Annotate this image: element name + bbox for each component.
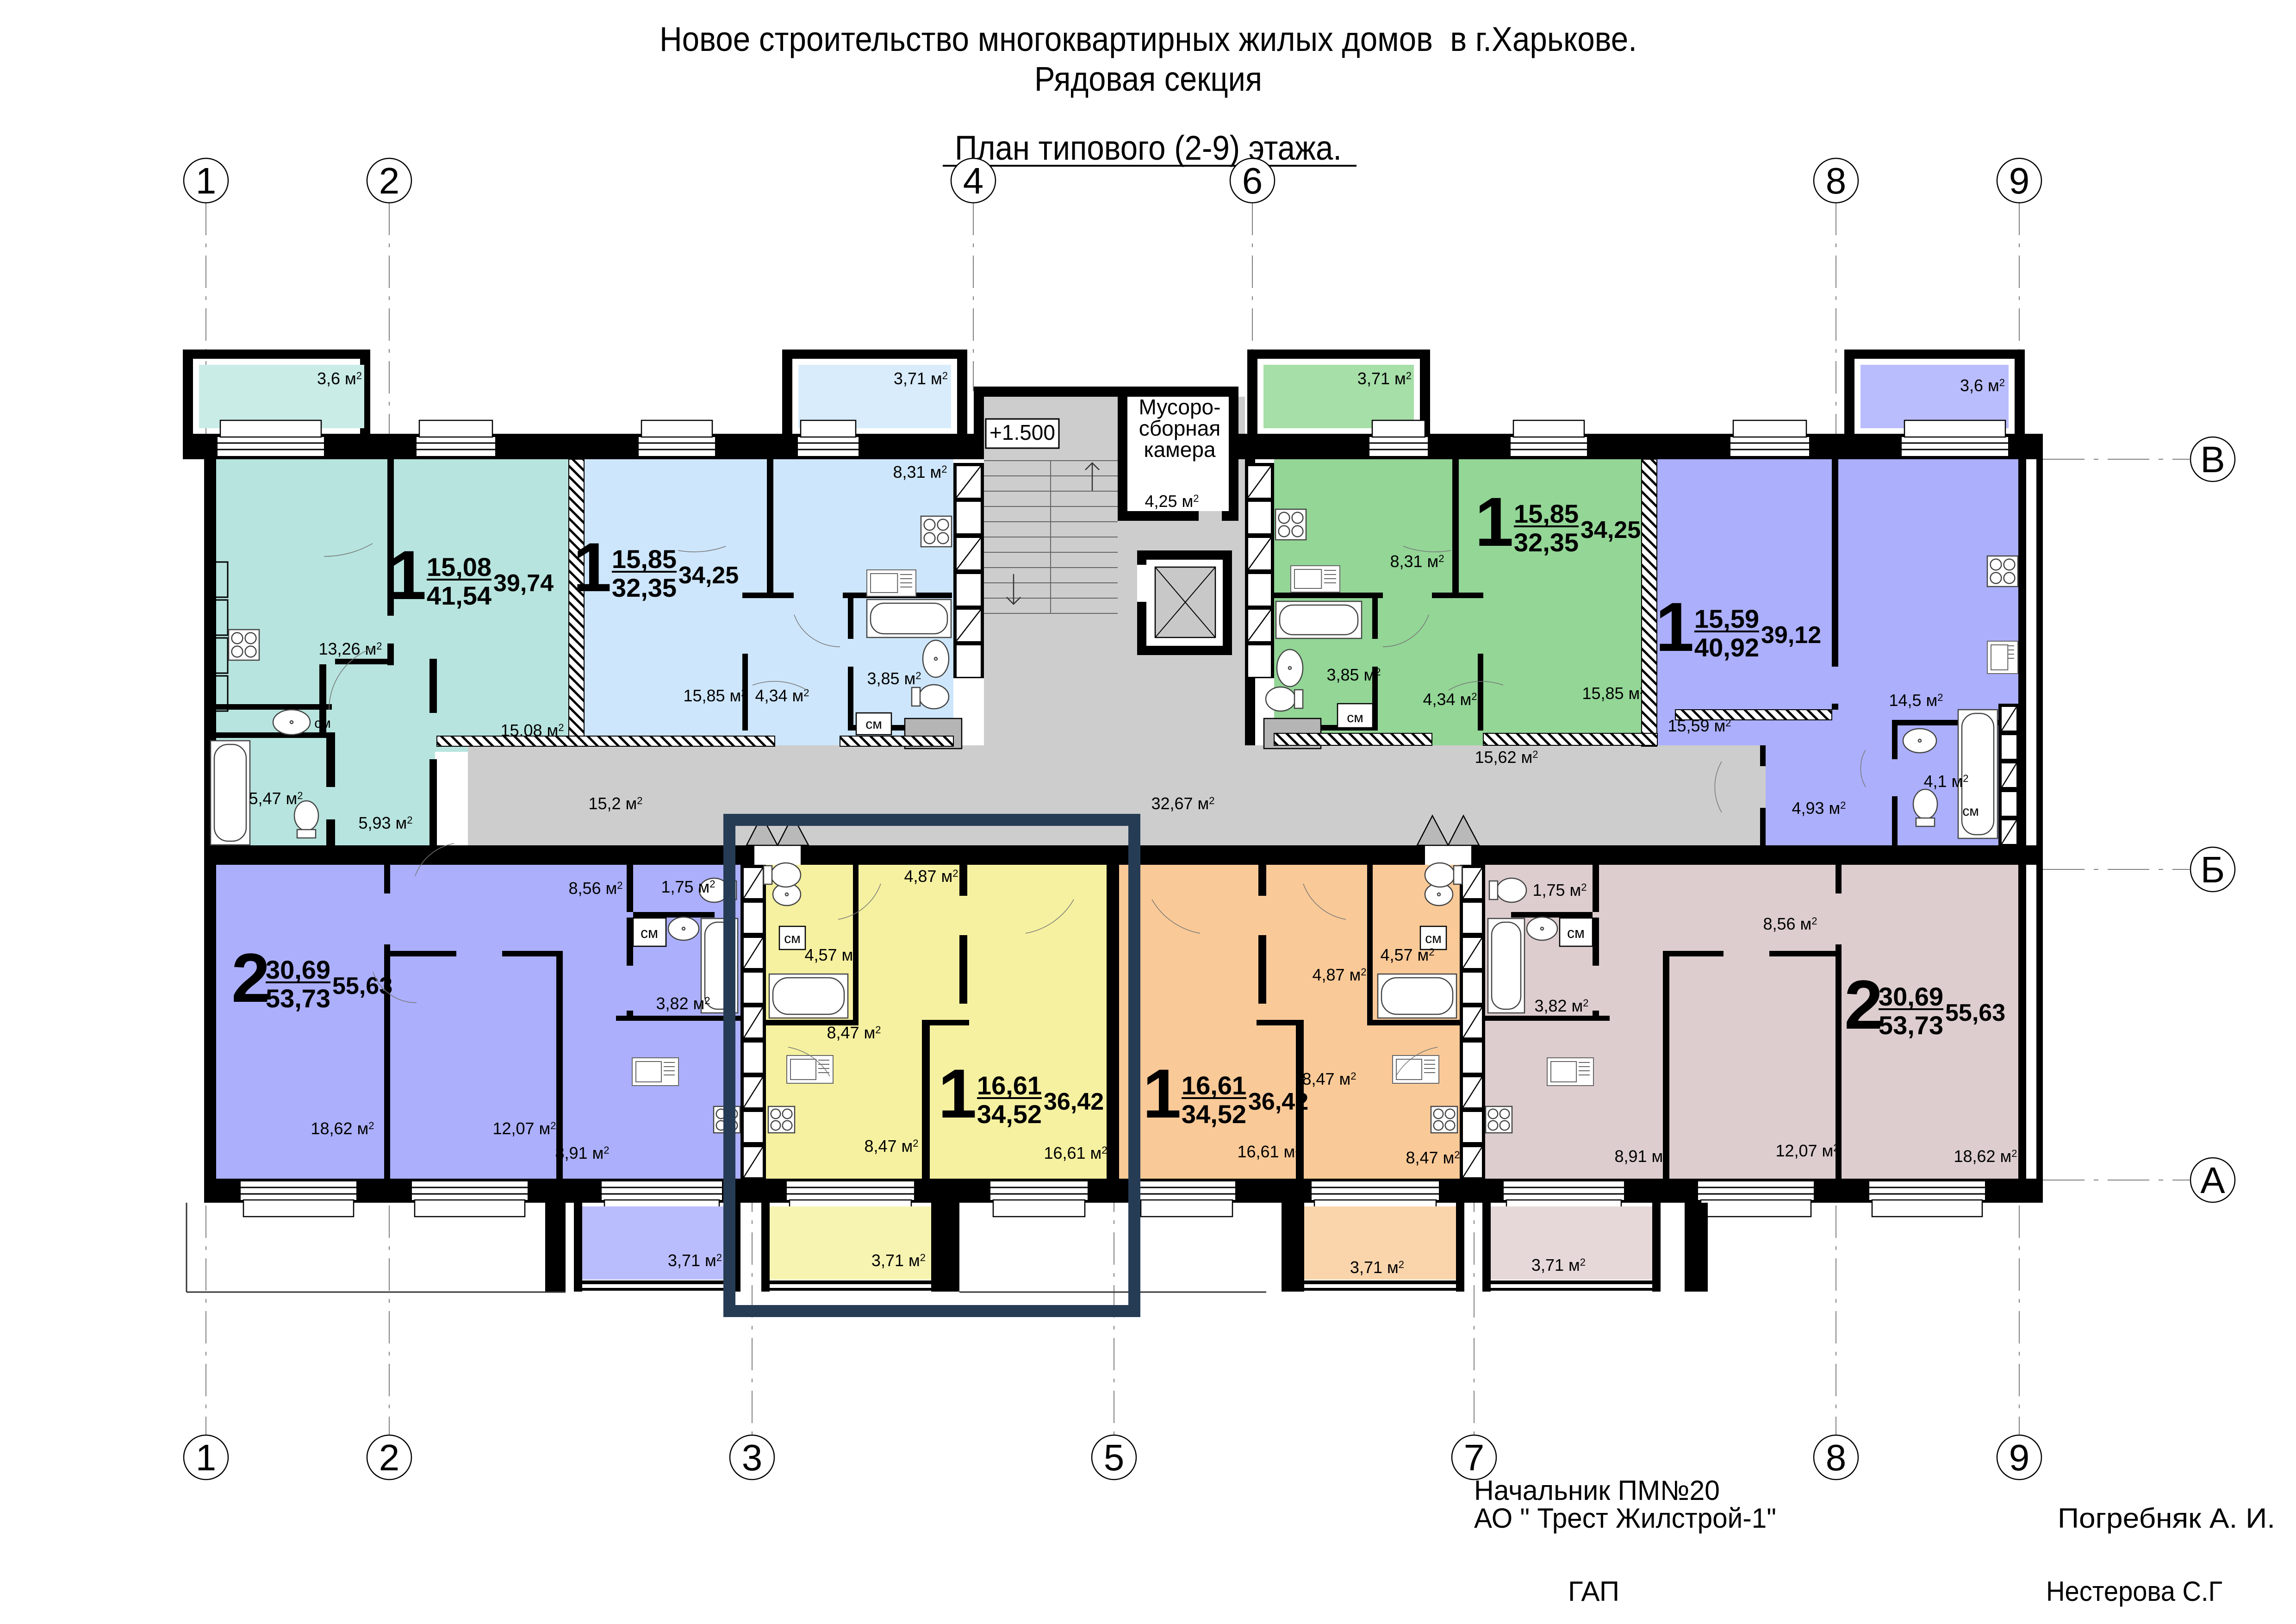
svg-text:Б: Б: [2201, 849, 2225, 890]
svg-text:15,85: 15,85: [612, 544, 677, 574]
svg-text:2: 2: [379, 1437, 400, 1478]
svg-text:15,85 м2: 15,85 м2: [683, 686, 747, 705]
svg-text:Начальник ПМ№20: Начальник ПМ№20: [1474, 1475, 1720, 1506]
svg-text:34,52: 34,52: [1182, 1099, 1246, 1129]
svg-text:34,25: 34,25: [1580, 517, 1641, 543]
svg-text:см: см: [314, 716, 331, 731]
svg-text:5,93 м2: 5,93 м2: [358, 813, 412, 832]
svg-text:см: см: [1567, 924, 1585, 941]
svg-text:8,47 м2: 8,47 м2: [864, 1137, 918, 1156]
svg-text:15,62 м2: 15,62 м2: [1475, 748, 1538, 767]
svg-text:15,59: 15,59: [1694, 604, 1759, 633]
svg-text:4,34 м2: 4,34 м2: [1423, 690, 1477, 709]
svg-text:8: 8: [1826, 160, 1847, 201]
svg-text:4,57 м2: 4,57 м2: [1380, 945, 1434, 964]
svg-text:АО " Трест Жилстрой-1": АО " Трест Жилстрой-1": [1474, 1503, 1776, 1534]
svg-text:4,87 м2: 4,87 м2: [904, 867, 958, 886]
svg-text:8,91 м2: 8,91 м2: [1614, 1147, 1668, 1166]
svg-text:40,92: 40,92: [1694, 633, 1759, 662]
svg-text:см: см: [641, 924, 658, 941]
svg-text:15,2 м2: 15,2 м2: [588, 794, 642, 813]
svg-text:3,82 м2: 3,82 м2: [1534, 996, 1588, 1015]
svg-text:Нестерова С.Г: Нестерова С.Г: [2046, 1576, 2222, 1607]
svg-text:4,25 м2: 4,25 м2: [1145, 492, 1199, 511]
svg-text:1: 1: [573, 528, 611, 606]
svg-text:53,73: 53,73: [1879, 1011, 1943, 1040]
svg-text:8: 8: [1826, 1437, 1847, 1478]
svg-text:15,85 м2: 15,85 м2: [1582, 684, 1645, 703]
svg-text:8,31 м2: 8,31 м2: [893, 462, 947, 481]
svg-text:9: 9: [2009, 1437, 2030, 1478]
svg-text:А: А: [2200, 1160, 2225, 1201]
svg-text:2: 2: [1844, 966, 1883, 1043]
svg-text:15,08: 15,08: [427, 552, 492, 581]
svg-text:3,71 м2: 3,71 м2: [894, 369, 948, 388]
svg-text:8,47 м2: 8,47 м2: [827, 1023, 881, 1042]
svg-text:41,54: 41,54: [427, 581, 492, 610]
svg-text:30,69: 30,69: [266, 955, 330, 984]
svg-text:9: 9: [2009, 160, 2030, 201]
svg-text:2: 2: [231, 939, 270, 1017]
svg-text:7: 7: [1464, 1437, 1485, 1478]
svg-text:15,59 м2: 15,59 м2: [1668, 716, 1731, 735]
svg-text:36,42: 36,42: [1044, 1088, 1104, 1115]
svg-text:1: 1: [938, 1055, 977, 1132]
svg-text:16,61 м2: 16,61 м2: [1044, 1143, 1107, 1162]
svg-text:1,75 м2: 1,75 м2: [1532, 881, 1587, 899]
svg-text:8,56 м2: 8,56 м2: [568, 879, 622, 898]
svg-text:6: 6: [1242, 160, 1263, 201]
svg-text:3,71 м2: 3,71 м2: [1531, 1255, 1586, 1274]
svg-text:30,69: 30,69: [1879, 982, 1943, 1011]
svg-text:1,75 м2: 1,75 м2: [661, 877, 715, 896]
svg-text:8,47 м2: 8,47 м2: [1302, 1069, 1356, 1088]
svg-text:План типового (2-9) этажа.: План типового (2-9) этажа.: [955, 129, 1342, 167]
svg-text:14,5 м2: 14,5 м2: [1889, 691, 1943, 710]
svg-text:55,63: 55,63: [332, 973, 392, 999]
svg-text:8,47 м2: 8,47 м2: [1406, 1148, 1460, 1167]
svg-text:3: 3: [742, 1437, 763, 1478]
svg-text:5: 5: [1104, 1437, 1125, 1478]
svg-text:см: см: [865, 717, 882, 732]
svg-text:Погребняк А. И.: Погребняк А. И.: [2058, 1503, 2275, 1534]
svg-text:ГАП: ГАП: [1568, 1576, 1619, 1607]
svg-text:см: см: [1347, 710, 1363, 725]
svg-text:Новое строительство многокварт: Новое строительство многоквартирных жилы…: [660, 20, 1637, 58]
svg-text:1: 1: [1475, 483, 1513, 561]
svg-text:2: 2: [379, 160, 400, 201]
svg-text:39,74: 39,74: [493, 570, 554, 597]
svg-text:32,67 м2: 32,67 м2: [1151, 794, 1214, 813]
svg-text:3,85 м2: 3,85 м2: [1326, 665, 1381, 684]
svg-text:4,57 м2: 4,57 м2: [804, 945, 859, 964]
svg-text:4: 4: [963, 160, 984, 201]
svg-text:1: 1: [1143, 1055, 1181, 1132]
svg-text:В: В: [2200, 439, 2225, 480]
svg-text:13,26 м2: 13,26 м2: [318, 639, 382, 658]
svg-text:16,61: 16,61: [1182, 1071, 1246, 1100]
svg-text:16,61 м2: 16,61 м2: [1237, 1142, 1300, 1161]
svg-text:3,6 м2: 3,6 м2: [317, 369, 362, 388]
svg-text:Рядовая секция: Рядовая секция: [1034, 60, 1262, 98]
svg-text:8,56 м2: 8,56 м2: [1763, 914, 1817, 933]
svg-text:1: 1: [196, 1437, 217, 1478]
svg-text:16,61: 16,61: [977, 1071, 1042, 1100]
svg-text:1: 1: [196, 160, 217, 201]
svg-text:15,85: 15,85: [1514, 499, 1579, 528]
svg-text:сборная: сборная: [1139, 416, 1220, 440]
svg-text:1: 1: [1655, 588, 1694, 666]
svg-text:камера: камера: [1144, 437, 1216, 462]
svg-text:34,52: 34,52: [977, 1099, 1042, 1129]
svg-text:12,07 м2: 12,07 м2: [1775, 1141, 1839, 1160]
svg-text:см: см: [784, 931, 801, 946]
svg-text:4,87 м2: 4,87 м2: [1312, 965, 1366, 984]
svg-text:3,71 м2: 3,71 м2: [1350, 1258, 1404, 1277]
svg-text:53,73: 53,73: [266, 984, 330, 1013]
svg-text:4,1 м2: 4,1 м2: [1923, 772, 1968, 791]
svg-text:4,34 м2: 4,34 м2: [755, 686, 809, 705]
svg-text:32,35: 32,35: [612, 573, 677, 602]
svg-text:39,12: 39,12: [1761, 622, 1821, 649]
svg-text:18,62 м2: 18,62 м2: [1954, 1147, 2017, 1166]
svg-text:1: 1: [388, 536, 426, 614]
svg-text:18,62 м2: 18,62 м2: [311, 1119, 374, 1138]
svg-text:32,35: 32,35: [1514, 528, 1579, 557]
svg-text:4,93 м2: 4,93 м2: [1792, 799, 1846, 818]
svg-text:Мусоро-: Мусоро-: [1139, 395, 1221, 419]
svg-text:см: см: [1425, 931, 1442, 946]
svg-text:см: см: [1962, 804, 1979, 819]
svg-text:55,63: 55,63: [1945, 999, 2005, 1026]
svg-text:3,85 м2: 3,85 м2: [867, 669, 921, 688]
svg-text:3,71 м2: 3,71 м2: [871, 1251, 926, 1270]
svg-text:8,91 м2: 8,91 м2: [555, 1143, 609, 1162]
svg-text:8,31 м2: 8,31 м2: [1390, 552, 1444, 571]
svg-text:12,07 м2: 12,07 м2: [492, 1119, 556, 1138]
svg-text:5,47 м2: 5,47 м2: [249, 789, 303, 808]
svg-text:3,71 м2: 3,71 м2: [668, 1251, 722, 1270]
svg-text:+1.500: +1.500: [989, 420, 1055, 444]
svg-text:34,25: 34,25: [678, 562, 739, 589]
svg-text:3,82 м2: 3,82 м2: [656, 994, 710, 1013]
svg-text:3,6 м2: 3,6 м2: [1960, 376, 2005, 395]
svg-text:36,42: 36,42: [1248, 1088, 1308, 1115]
svg-text:3,71 м2: 3,71 м2: [1357, 369, 1412, 388]
